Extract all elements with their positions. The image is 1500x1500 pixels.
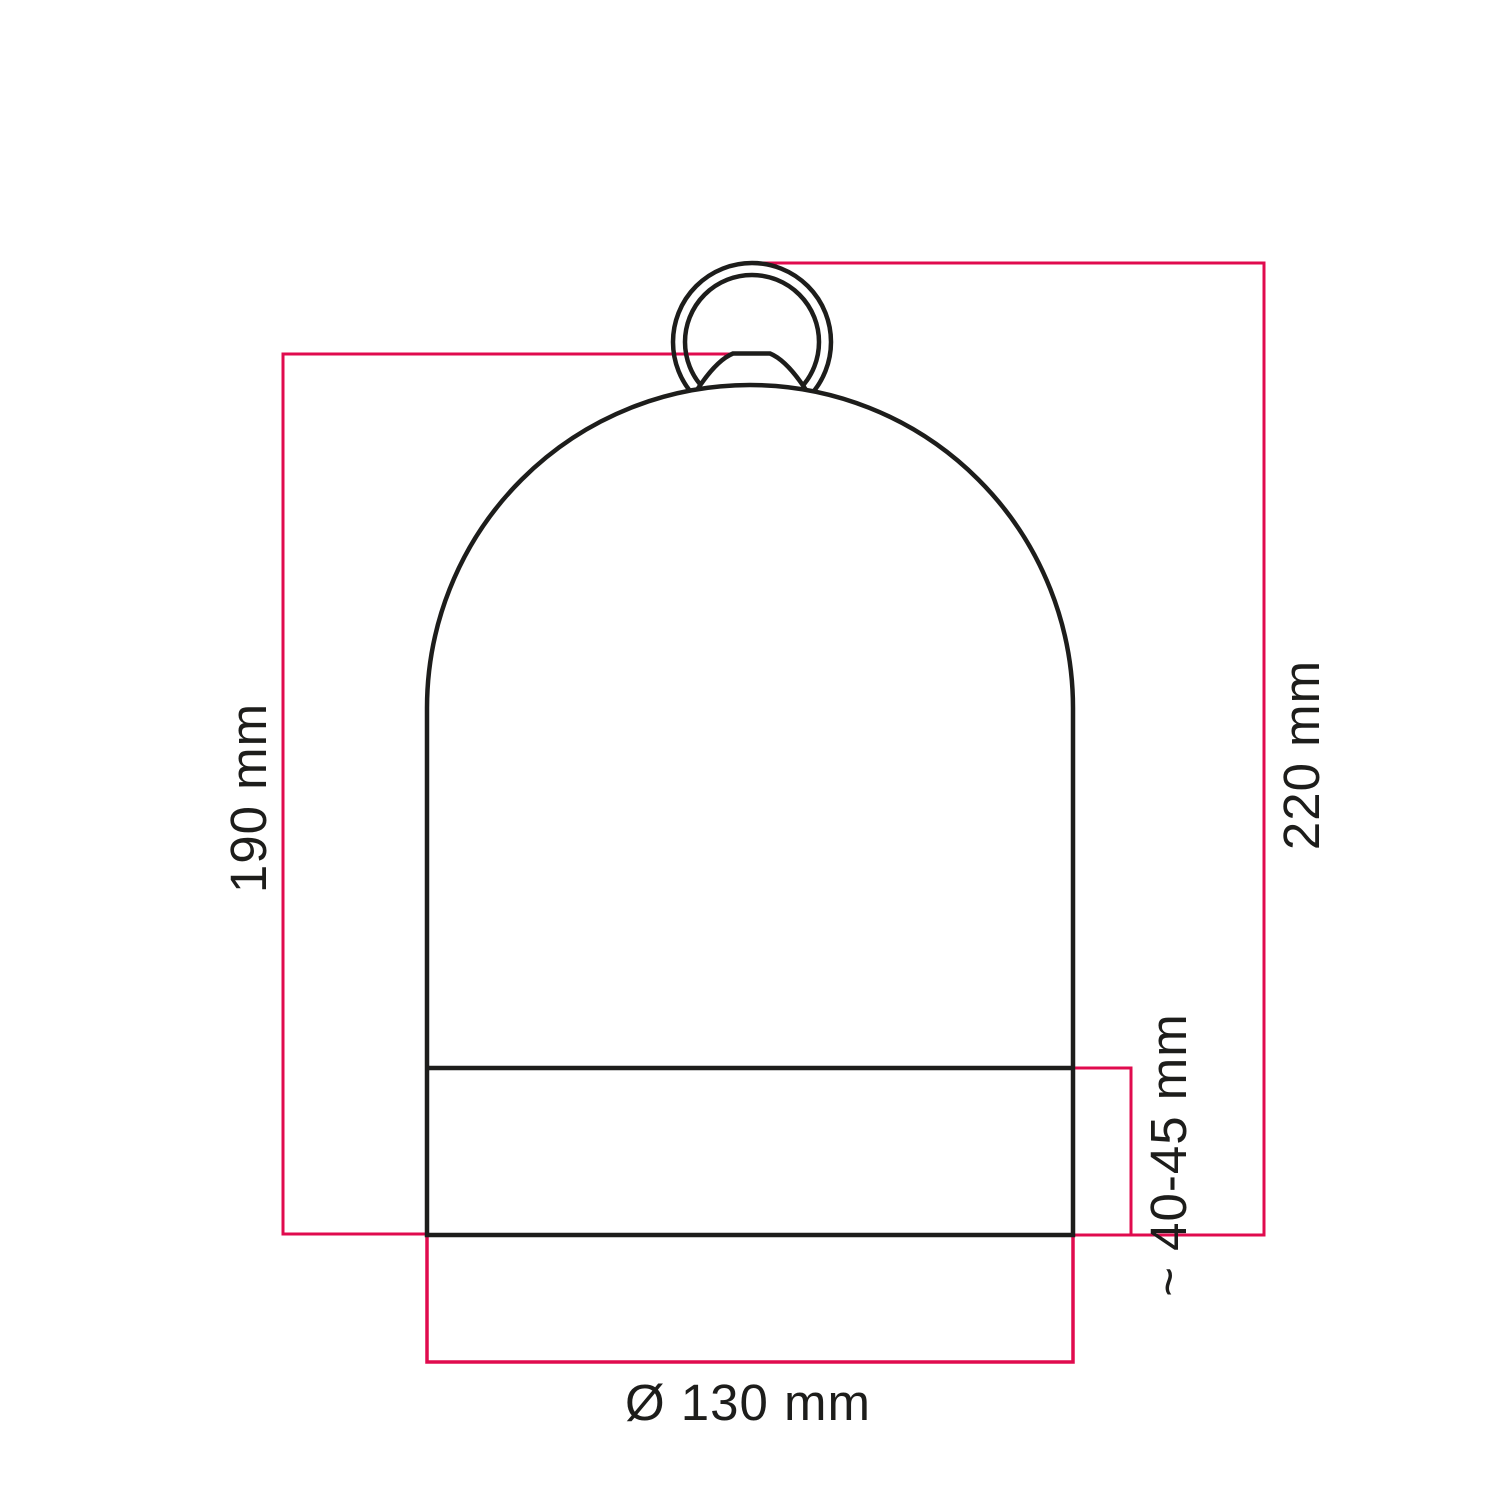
bell-lampshade-dimension-drawing: 190 mm 220 mm ~ 40-45 mm Ø 130 mm [0,0,1500,1500]
dimension-drawing-page: 190 mm 220 mm ~ 40-45 mm Ø 130 mm [0,0,1500,1500]
label-height-total: 220 mm [1273,660,1330,850]
dimension-line-diameter [427,1235,1073,1362]
label-diameter: Ø 130 mm [625,1374,871,1431]
label-base-height: ~ 40-45 mm [1140,1013,1197,1297]
bell-body-fill [427,385,1073,1235]
label-height-inner: 190 mm [220,703,277,893]
dimension-line-base-height [1073,1068,1131,1235]
